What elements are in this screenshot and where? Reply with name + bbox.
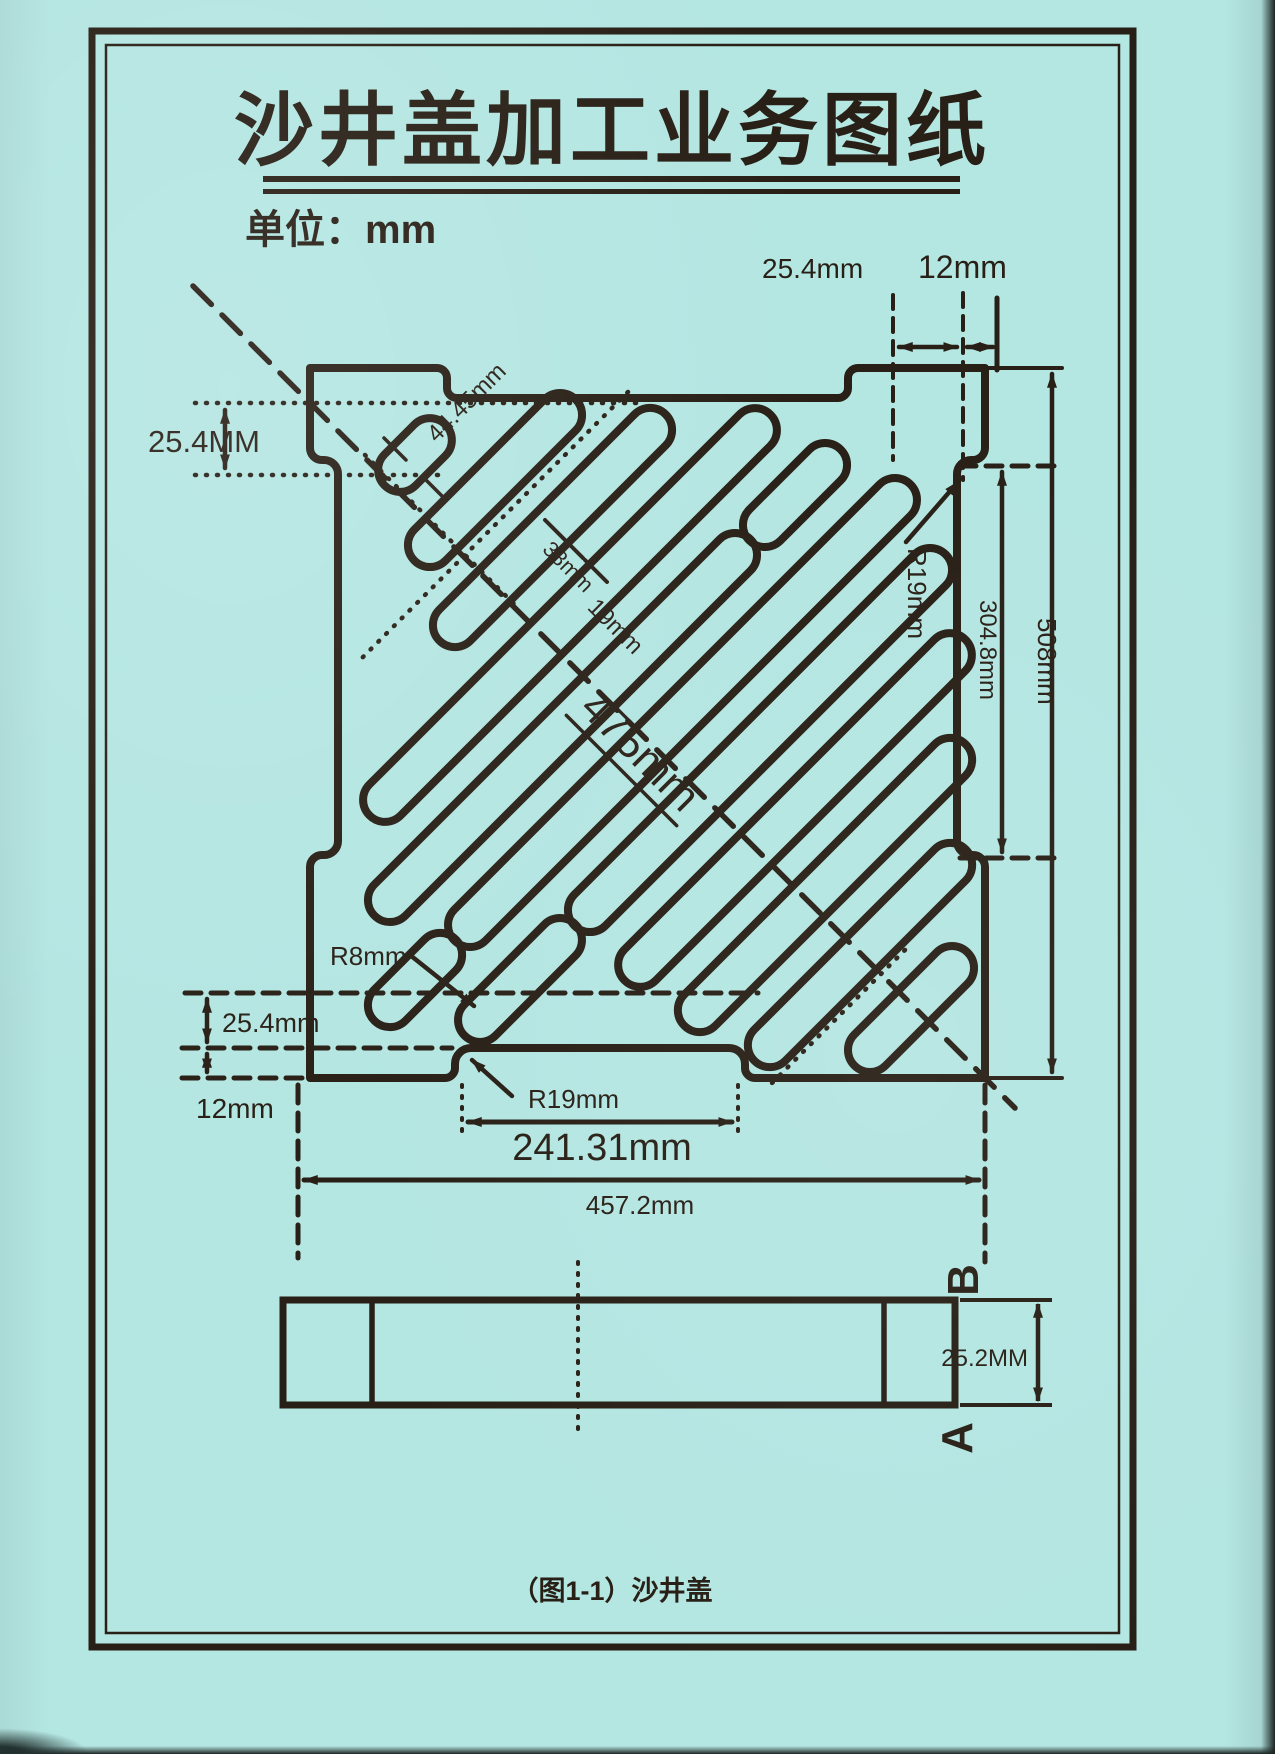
dim-slot-length-group: 475mm — [566, 679, 712, 825]
dim-overall-height: 508mm — [1032, 618, 1062, 705]
dim-side-notch-radius: R19mm — [902, 548, 932, 639]
dim-bottom-offset: 25.4mm — [222, 1008, 320, 1038]
scan-corner-shadow — [0, 1728, 90, 1754]
section-thickness-label: 25.2MM — [941, 1345, 1028, 1372]
title-underline-1 — [263, 176, 960, 182]
unit-label: 单位：mm — [245, 208, 436, 252]
dim-slot-end-radius: R8mm — [330, 941, 407, 971]
scan-edge-bottom — [0, 1746, 1275, 1754]
dim-bottom-edge: 12mm — [196, 1093, 274, 1124]
section-label-b: B — [939, 1264, 988, 1296]
dim-side-notch-length: 304.8mm — [974, 600, 1001, 700]
dim-top-right-inset: 25.4mm — [762, 253, 863, 284]
vent-slot — [734, 434, 856, 556]
section-view: B A 25.2MM — [283, 1262, 1052, 1454]
vent-slots — [354, 384, 983, 1081]
main-plan-view: 25.4mm 12mm 25.4MM 44.45mm 38mm 19mm 475… — [148, 249, 1062, 1262]
title-underline-2 — [263, 189, 960, 194]
dim-top-left-offset: 25.4MM — [148, 424, 260, 459]
vent-slot — [449, 909, 591, 1051]
figure-caption: （图1-1）沙井盖 — [511, 1576, 712, 1606]
dim-overall-width: 457.2mm — [586, 1190, 694, 1220]
drawing-canvas: 沙井盖加工业务图纸 单位：mm — [0, 0, 1275, 1754]
scanned-drawing-page: 沙井盖加工业务图纸 单位：mm — [0, 0, 1275, 1754]
section-label-a: A — [933, 1422, 982, 1454]
dotted-diagonal-mid — [365, 455, 520, 610]
dim-slot-length: 475mm — [571, 683, 709, 821]
title-block: 沙井盖加工业务图纸 单位：mm — [234, 86, 990, 252]
dim-bottom-notch-width: 241.31mm — [512, 1127, 692, 1169]
section-outline — [283, 1300, 955, 1405]
scan-edge-right — [1261, 0, 1275, 1754]
vent-slot — [354, 399, 786, 831]
page-title: 沙井盖加工业务图纸 — [234, 86, 990, 175]
dim-bottom-notch-radius: R19mm — [528, 1084, 619, 1114]
vent-slot — [839, 937, 983, 1081]
dim-top-right-edge: 12mm — [918, 249, 1007, 285]
